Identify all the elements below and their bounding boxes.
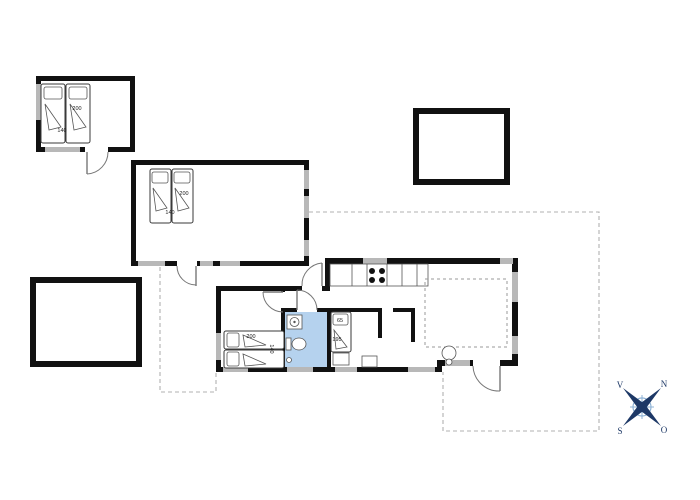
wall: [327, 308, 331, 367]
loft-outline: [425, 279, 507, 347]
floorplan-canvas: 200 140 200 140: [0, 0, 700, 500]
annex2-double-bed: 200 140: [150, 169, 193, 223]
compass-label-west: V: [617, 380, 624, 390]
window: [304, 170, 309, 189]
bed-dim-label: 140: [57, 128, 66, 134]
sink-icon: [287, 315, 302, 329]
entrance-door-arc: [302, 263, 322, 286]
window: [363, 258, 387, 264]
wall: [281, 286, 285, 292]
window: [304, 196, 309, 218]
door-arc: [177, 266, 196, 285]
pillow: [227, 352, 239, 366]
wall: [36, 76, 135, 81]
bathroom: [285, 312, 327, 367]
wall: [378, 308, 382, 338]
pillow: [152, 172, 168, 183]
shed-top-right: [416, 111, 507, 182]
floorplan-svg: 200 140 200 140: [0, 0, 700, 500]
main-bedroom-double-bed: 200 140: [224, 331, 284, 368]
bedside-cabinet: [333, 353, 349, 365]
bathroom-door-arc: [297, 290, 317, 310]
side-table: [362, 356, 377, 367]
annex1-double-bed: 200 140: [41, 84, 90, 143]
compass-rose: V N S O: [617, 379, 668, 436]
wall: [131, 160, 309, 165]
bedroom-door-arc: [263, 292, 283, 312]
kitchen-counter: [330, 264, 428, 286]
annex2-bedroom: 200 140: [131, 160, 309, 286]
wall: [216, 286, 302, 291]
door-arc: [87, 152, 108, 174]
pillow: [174, 172, 190, 183]
terrace-outline-left: [160, 267, 216, 392]
wall: [108, 147, 135, 152]
wall: [131, 160, 136, 266]
window: [408, 367, 435, 372]
window: [500, 258, 513, 264]
window: [287, 367, 313, 372]
terrace-outline-right: [309, 212, 599, 431]
compass-center: [638, 403, 647, 412]
window: [216, 333, 221, 360]
wall: [130, 76, 135, 152]
shed-bottom-left: [33, 280, 139, 364]
window: [138, 261, 165, 266]
floor-drain-icon: [287, 358, 292, 363]
terrace-door-arc: [473, 366, 500, 391]
pillow: [69, 87, 87, 99]
window: [36, 84, 41, 120]
window: [45, 147, 80, 152]
main-house: 200 140 65 195: [216, 258, 518, 391]
bed-dim-label: 200: [179, 191, 188, 197]
wall: [325, 258, 517, 264]
pillow: [44, 87, 62, 99]
bed-dim-label: 65: [337, 318, 343, 324]
wall: [317, 308, 382, 312]
compass-label-north: N: [661, 379, 668, 389]
window: [220, 261, 240, 266]
wall: [411, 308, 415, 342]
bed-dim-label: 140: [268, 344, 274, 353]
annex1-bedroom: 200 140: [36, 76, 135, 174]
bed-dim-label: 140: [165, 210, 174, 216]
window: [512, 336, 518, 354]
wall: [500, 360, 518, 366]
compass-label-east: O: [661, 425, 668, 435]
wall: [197, 261, 309, 266]
pillow: [227, 333, 239, 347]
bed-dim-label: 195: [332, 337, 341, 343]
toilet-icon: [286, 338, 306, 350]
wall: [281, 308, 297, 312]
bed-dim-label: 200: [246, 334, 255, 340]
window: [304, 240, 309, 256]
small-bedroom-single-bed: 65 195: [331, 312, 377, 367]
compass-label-south: S: [617, 426, 622, 436]
window: [200, 261, 213, 266]
window: [512, 272, 518, 302]
bed-dim-label: 200: [72, 106, 81, 112]
window: [335, 367, 357, 372]
